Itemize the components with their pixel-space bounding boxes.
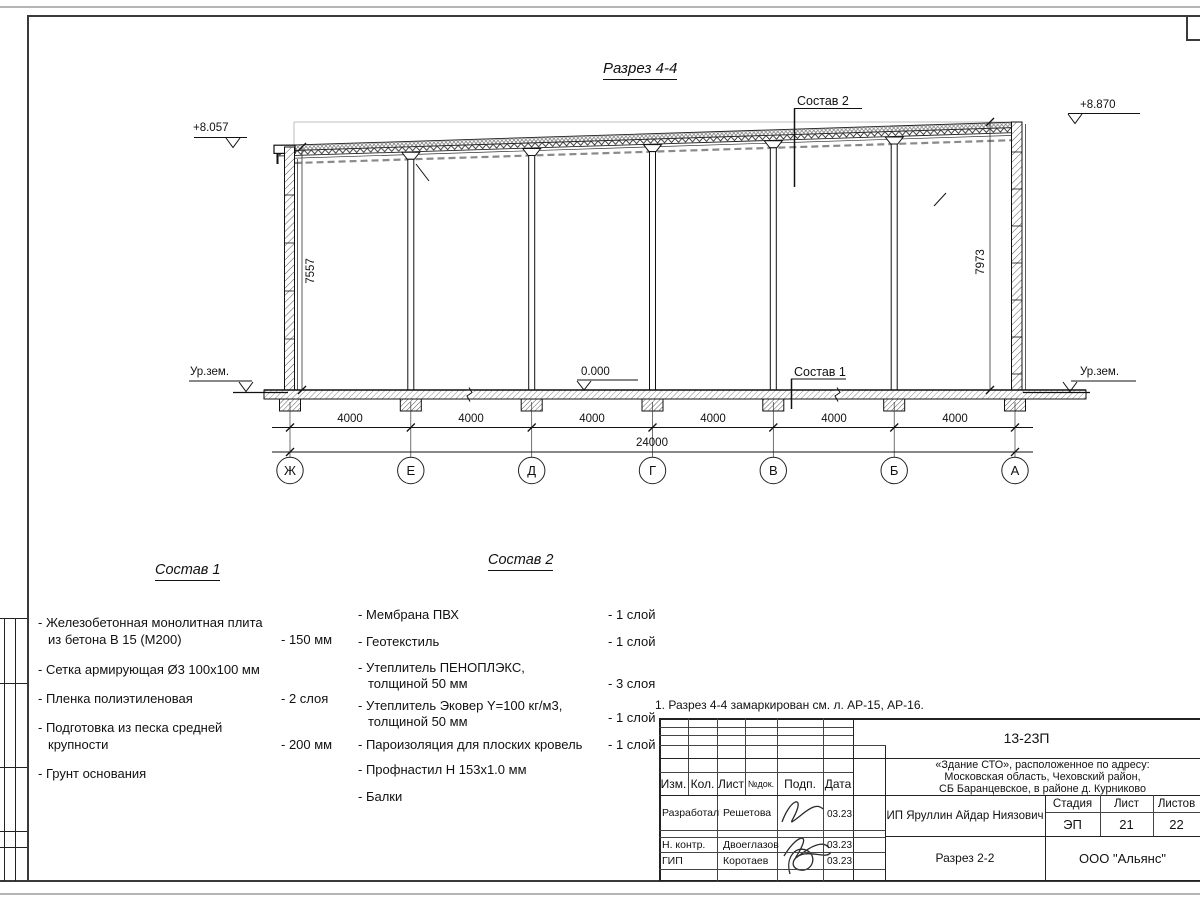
comp2-heading: Состав 2 (488, 552, 553, 571)
comp1-item-line: - Железобетонная монолитная плита (38, 615, 263, 630)
bay-dim: 4000 (562, 413, 622, 425)
axis-bubble-letter: В (760, 457, 787, 484)
tb-role: ГИП (662, 855, 683, 867)
comp2-item-line: - Пароизоляция для плоских кровель (358, 737, 582, 752)
comp2-item-line: толщиной 50 мм (368, 676, 468, 691)
tb-company: ООО "Альянс" (1045, 836, 1200, 880)
axis-bubble-letter: А (1002, 457, 1029, 484)
axis-bubble-letter: Б (881, 457, 908, 484)
tb-date: 03.23 (827, 856, 852, 867)
comp2-item-value: - 3 слоя (608, 676, 655, 691)
tb-sheet-label: Лист (1100, 795, 1153, 812)
comp2-item-line: - Балки (358, 789, 402, 804)
bay-dim: 4000 (804, 413, 864, 425)
axis-bubble-letter: Г (639, 457, 666, 484)
height-dim-left: 7557 (305, 251, 317, 291)
tb-header-kol: Кол. (688, 772, 717, 795)
wall-left (285, 147, 298, 390)
ground-level-label-right: Ур.зем. (1080, 366, 1119, 378)
callout-label-comp2: Состав 2 (797, 94, 849, 108)
comp2-item-line: - Утеплитель Эковер Y=100 кг/м3, (358, 698, 562, 713)
comp2-item-line: толщиной 50 мм (368, 714, 468, 729)
comp2-item-line: - Геотекстиль (358, 634, 439, 649)
tb-address-line: «Здание СТО», расположенное по адресу: (935, 759, 1149, 771)
tb-header-podp: Подп. (777, 772, 823, 795)
comp2-item-value: - 1 слой (608, 634, 656, 649)
total-dim: 24000 (612, 437, 692, 449)
comp1-item-line: - Пленка полиэтиленовая (38, 691, 193, 706)
bay-dim: 4000 (320, 413, 380, 425)
height-dim-right: 7973 (975, 242, 987, 282)
tb-date: 03.23 (827, 809, 852, 820)
comp1-item-line: - Сетка армирующая Ø3 100х100 мм (38, 662, 260, 677)
tb-sheet-title: Разрез 2-2 (885, 836, 1045, 880)
tb-line (659, 745, 886, 746)
comp1-item-line: - Подготовка из песка средней (38, 720, 222, 735)
tb-client: ИП Яруллин Айдар Ниязович (885, 795, 1045, 836)
tb-line (659, 727, 853, 728)
vertical-dimensions (298, 118, 994, 394)
tb-name: Двоеглазов (723, 839, 779, 851)
elevation-zero-label: 0.000 (581, 366, 610, 378)
axis-bubble-letter: Ж (277, 457, 304, 484)
columns (402, 137, 903, 390)
comp1-item-value: - 150 мм (281, 632, 332, 647)
bay-dim: 4000 (441, 413, 501, 425)
comp1-heading: Состав 1 (155, 562, 220, 581)
callout-leaders (416, 109, 946, 410)
comp1-item-value: - 2 слоя (281, 691, 328, 706)
comp2-item-value: - 1 слой (608, 607, 656, 622)
tb-address-line: СБ Баранцевское, в районе д. Курниково (939, 783, 1146, 795)
tb-line (659, 837, 885, 838)
comp1-item-line: крупности (48, 737, 108, 752)
tb-address-line: Московская область, Чеховский район, (944, 771, 1140, 783)
tb-stage-value: ЭП (1045, 812, 1100, 836)
tb-sheet-value: 21 (1100, 812, 1153, 836)
ground-level-label-left: Ур.зем. (190, 366, 229, 378)
tb-stage-label: Стадия (1045, 795, 1100, 812)
tb-line (659, 735, 853, 736)
tb-line (659, 852, 885, 853)
sheet-note: 1. Разрез 4-4 замаркирован см. л. АР-15,… (655, 698, 924, 712)
tb-header-list: Лист (717, 772, 745, 795)
comp2-item-line: - Мембрана ПВХ (358, 607, 459, 622)
tb-sheets-label: Листов (1153, 795, 1200, 812)
bay-dim: 4000 (925, 413, 985, 425)
tb-line (717, 718, 718, 881)
axis-bubble-letter: Е (397, 457, 424, 484)
comp1-item-value: - 200 мм (281, 737, 332, 752)
tb-address: «Здание СТО», расположенное по адресу: М… (885, 758, 1200, 795)
tb-header-izm: Изм. (659, 772, 688, 795)
comp2-item-value: - 1 слой (608, 737, 656, 752)
tb-name: Коротаев (723, 855, 768, 867)
comp2-item-line: - Утеплитель ПЕНОПЛЭКС, (358, 660, 525, 675)
elevation-marks (189, 114, 1140, 392)
title-block: Изм. Кол. Лист №док. Подп. Дата Разработ… (659, 718, 1200, 881)
callout-label-comp1: Состав 1 (794, 365, 846, 379)
tb-line (659, 830, 885, 831)
comp2-item-line: - Профнастил Н 153х1.0 мм (358, 762, 527, 777)
floor-slab (264, 390, 1086, 399)
tb-sheets-value: 22 (1153, 812, 1200, 836)
tb-date: 03.23 (827, 840, 852, 851)
tb-doc-number: 13-23П (853, 718, 1200, 758)
tb-line (823, 718, 824, 881)
tb-header-data: Дата (823, 772, 853, 795)
comp1-item-line: - Грунт основания (38, 766, 146, 781)
tb-line (659, 718, 661, 881)
roof-assembly (276, 122, 1016, 163)
wall-right (1012, 122, 1026, 390)
tb-role: Разработал (662, 807, 719, 819)
bay-dim: 4000 (683, 413, 743, 425)
axis-bubble-letter: Д (518, 457, 545, 484)
elevation-left-label: +8.057 (193, 122, 229, 134)
tb-name: Решетова (723, 807, 771, 819)
tb-line (659, 869, 885, 870)
elevation-right-label: +8.870 (1080, 99, 1116, 111)
tb-role: Н. контр. (662, 839, 705, 851)
drawing-sheet: { "section": { "title": "Разрез 4-4", "e… (0, 0, 1200, 900)
tb-header-dok: №док. (745, 772, 777, 795)
tb-line (777, 718, 778, 881)
comp1-item-line: из бетона В 15 (М200) (48, 632, 182, 647)
section-title: Разрез 4-4 (603, 60, 677, 80)
comp2-item-value: - 1 слой (608, 710, 656, 725)
